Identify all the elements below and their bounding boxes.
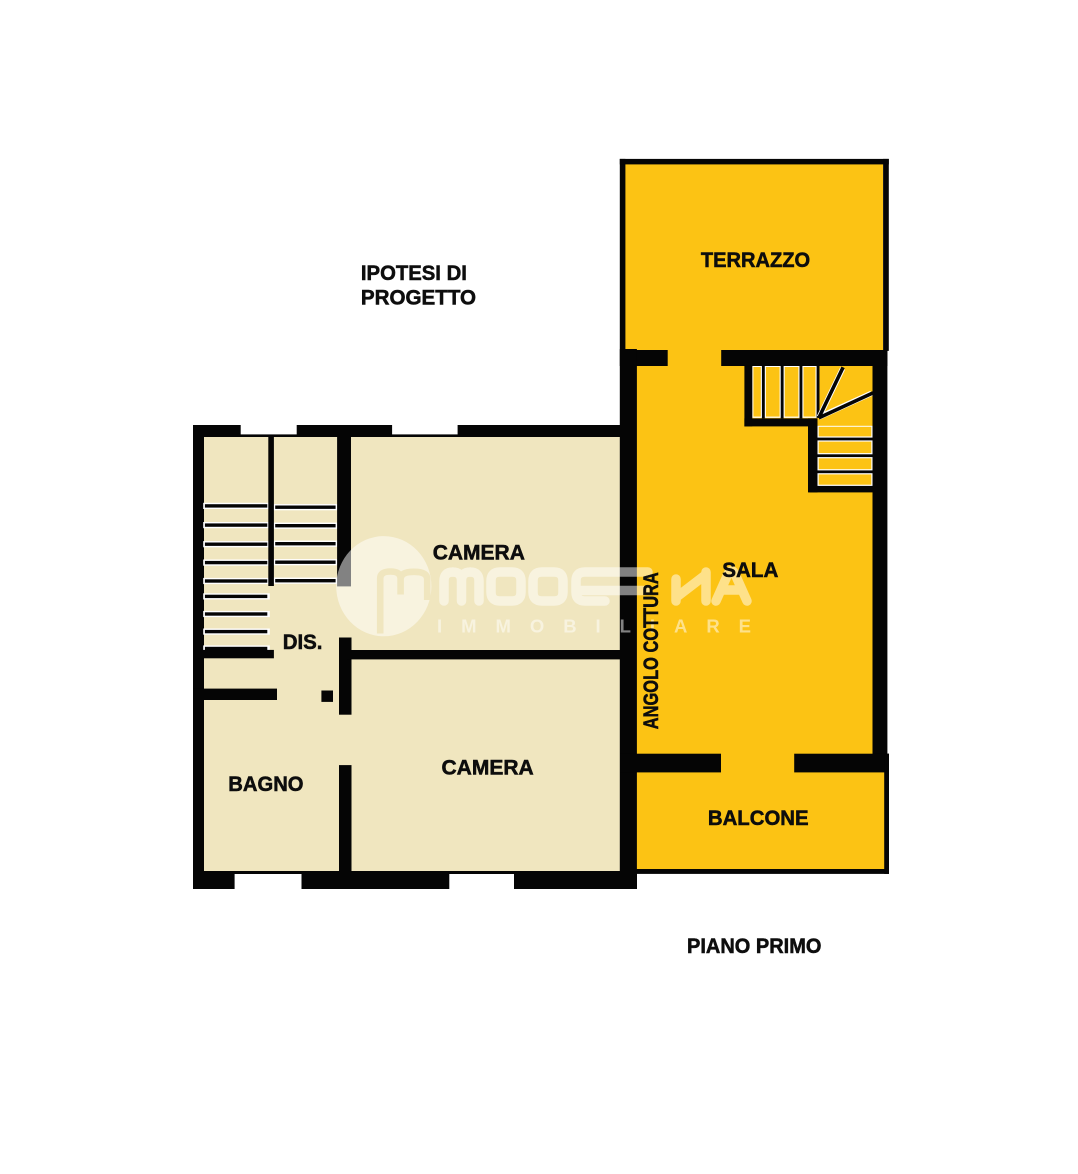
svg-text:ANGOLO COTTURA: ANGOLO COTTURA xyxy=(639,572,663,729)
svg-text:SALA: SALA xyxy=(722,558,778,582)
svg-text:PROGETTO: PROGETTO xyxy=(361,285,476,309)
svg-text:IMMOBILIARE: IMMOBILIARE xyxy=(437,616,775,637)
svg-text:BAGNO: BAGNO xyxy=(228,772,303,796)
svg-text:PIANO PRIMO: PIANO PRIMO xyxy=(687,934,821,958)
svg-text:BALCONE: BALCONE xyxy=(708,806,809,830)
svg-text:CAMERA: CAMERA xyxy=(433,540,525,564)
svg-text:IPOTESI DI: IPOTESI DI xyxy=(361,261,467,285)
svg-text:TERRAZZO: TERRAZZO xyxy=(701,248,810,272)
svg-text:CAMERA: CAMERA xyxy=(442,756,534,780)
svg-text:DIS.: DIS. xyxy=(283,630,323,654)
